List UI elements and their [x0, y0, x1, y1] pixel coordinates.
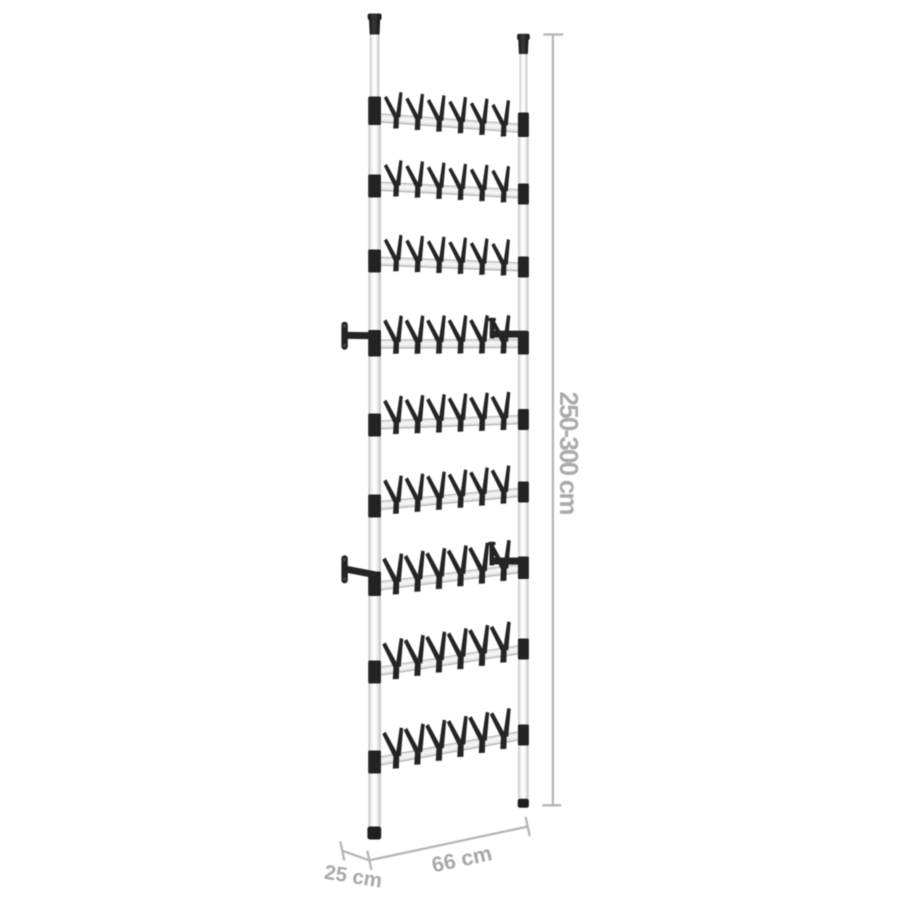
svg-text:250-300 cm: 250-300 cm: [554, 392, 584, 515]
